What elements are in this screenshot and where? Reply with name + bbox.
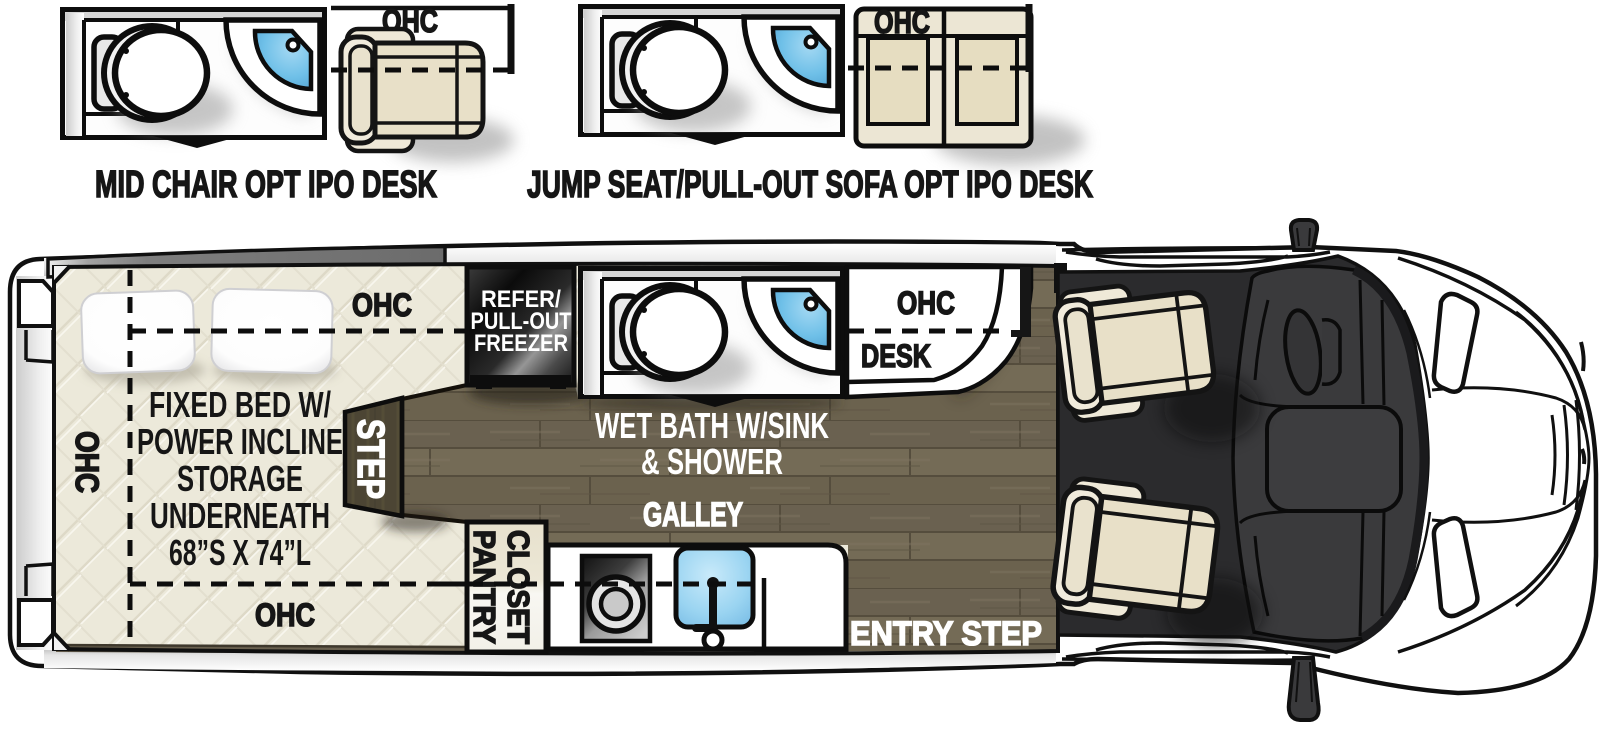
- svg-text:OHC: OHC: [897, 285, 955, 321]
- svg-text:OHC: OHC: [69, 431, 105, 493]
- svg-text:ENTRY STEP: ENTRY STEP: [850, 615, 1042, 653]
- svg-text:CLOSET: CLOSET: [501, 530, 536, 644]
- svg-text:68”S X 74”L: 68”S X 74”L: [169, 532, 311, 573]
- svg-text:FIXED BED W/: FIXED BED W/: [149, 384, 331, 425]
- svg-text:DESK: DESK: [861, 338, 931, 374]
- svg-text:OHC: OHC: [874, 4, 930, 40]
- svg-text:STORAGE: STORAGE: [177, 458, 303, 499]
- svg-text:FREEZER: FREEZER: [474, 330, 568, 357]
- svg-text:STEP: STEP: [349, 419, 391, 499]
- svg-text:WET BATH W/SINK: WET BATH W/SINK: [595, 405, 829, 446]
- svg-text:UNDERNEATH: UNDERNEATH: [150, 495, 330, 536]
- svg-text:MID CHAIR OPT IPO DESK: MID CHAIR OPT IPO DESK: [95, 164, 437, 206]
- svg-text:JUMP SEAT/PULL-OUT SOFA OPT IP: JUMP SEAT/PULL-OUT SOFA OPT IPO DESK: [527, 164, 1093, 206]
- svg-text:& SHOWER: & SHOWER: [641, 441, 783, 482]
- svg-text:OHC: OHC: [255, 597, 315, 633]
- svg-text:POWER INCLINE: POWER INCLINE: [137, 421, 343, 462]
- svg-text:GALLEY: GALLEY: [643, 496, 743, 534]
- svg-text:PANTRY: PANTRY: [467, 530, 502, 644]
- svg-text:OHC: OHC: [352, 287, 412, 323]
